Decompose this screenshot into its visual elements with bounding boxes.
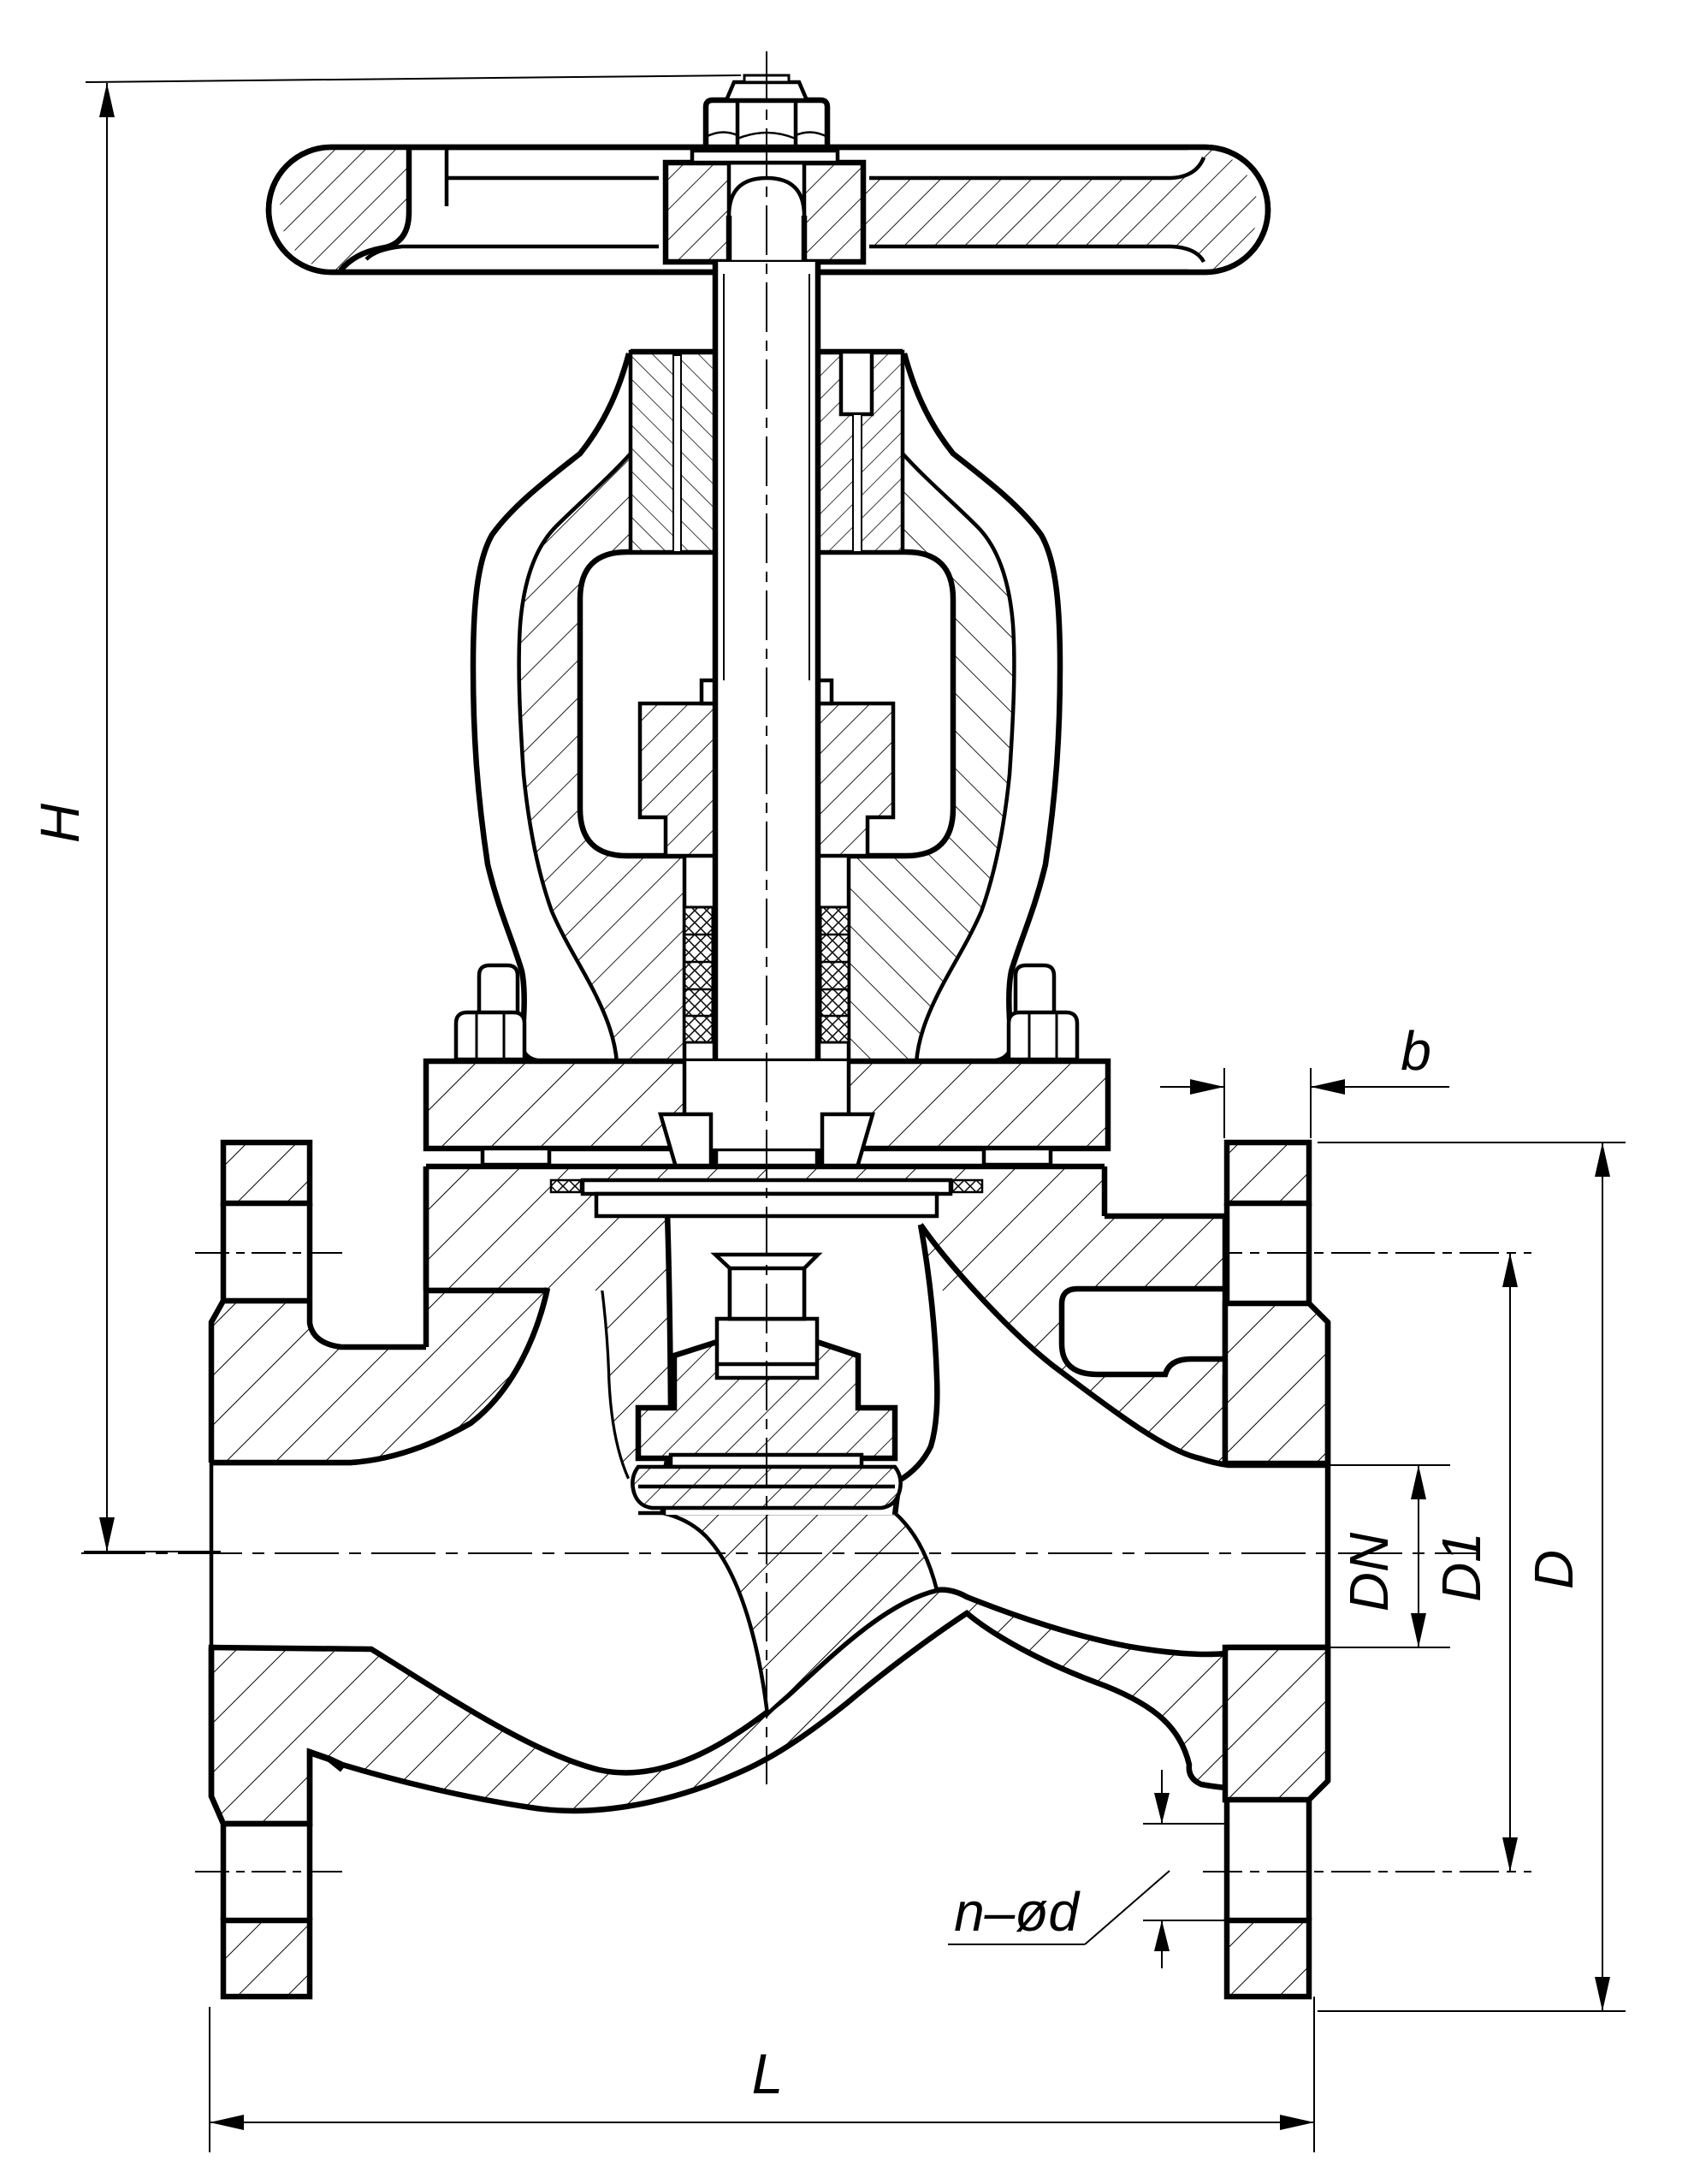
svg-text:D1: D1	[1430, 1532, 1492, 1602]
svg-text:b: b	[1401, 1020, 1431, 1082]
svg-text:H: H	[29, 803, 91, 843]
svg-text:D: D	[1523, 1550, 1584, 1589]
svg-text:n–ød: n–ød	[954, 1881, 1081, 1943]
svg-text:DN: DN	[1338, 1532, 1400, 1611]
svg-text:L: L	[752, 2042, 784, 2105]
